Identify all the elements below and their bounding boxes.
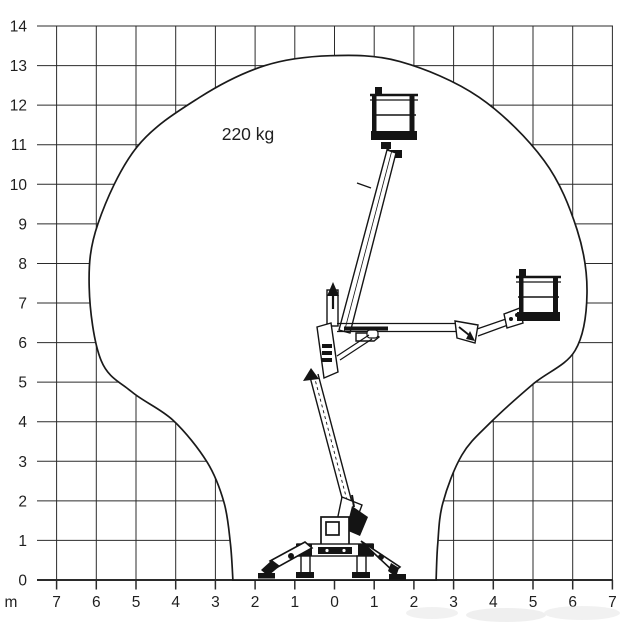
y-axis-tick-label: 6: [18, 335, 27, 352]
y-axis-tick-label: 14: [10, 19, 28, 36]
chassis-window: [326, 522, 339, 535]
x-axis-tick-label: 6: [92, 594, 101, 611]
load-capacity-label: 220 kg: [222, 124, 275, 144]
diagram-page: 220 kg: [0, 0, 629, 623]
axis-unit-label: m: [5, 594, 18, 611]
x-axis-tick-label: 1: [370, 594, 379, 611]
x-axis-tick-label: 4: [171, 594, 180, 611]
outrigger-left-pad: [258, 573, 275, 579]
y-axis-tick-label: 7: [18, 296, 27, 313]
basket-top-control-box: [375, 87, 382, 94]
y-axis-tick-label: 8: [18, 256, 27, 273]
x-axis-tick-label: 5: [132, 594, 141, 611]
y-axis-tick-label: 10: [10, 177, 28, 194]
y-axis-tick-label: 3: [18, 454, 27, 471]
x-axis-tick-label: 3: [449, 594, 458, 611]
basket-right-left-post: [519, 278, 524, 314]
outrigger-right-pad: [389, 574, 406, 580]
x-axis-tick-label: 5: [529, 594, 538, 611]
working-envelope-diagram: 220 kg: [0, 0, 629, 623]
x-axis-tick-label: 7: [52, 594, 61, 611]
y-axis-tick-label: 2: [18, 493, 27, 510]
y-axis-tick-label: 9: [18, 216, 27, 233]
y-axis-tick-label: 0: [18, 573, 27, 590]
y-axis-tick-label: 5: [18, 375, 27, 392]
x-axis-tick-label: 1: [290, 594, 299, 611]
strut-end-cap: [367, 330, 378, 338]
y-axis-tick-label: 11: [11, 137, 27, 154]
x-axis-tick-label: 3: [211, 594, 220, 611]
x-axis-tick-label: 0: [330, 594, 339, 611]
y-axis-tick-label: 4: [18, 414, 27, 431]
watermark-smudge: [406, 606, 620, 622]
basket-right-control-box: [519, 269, 526, 276]
y-axis-tick-label: 1: [18, 533, 27, 550]
y-axis-tick-label: 13: [10, 58, 27, 75]
x-axis-tick-label: 2: [251, 594, 260, 611]
y-axis-tick-label: 12: [10, 98, 27, 115]
basket-right-right-post: [553, 278, 558, 314]
